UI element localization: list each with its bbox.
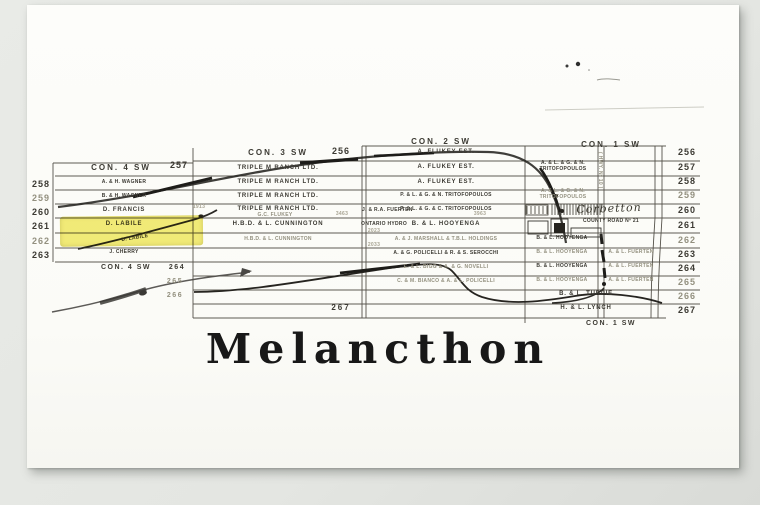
lot-label-con1-257b: TRITOFOPOULOS [526, 167, 600, 172]
lot-label-con2-fuerten: J. & R.A. FUERTEN [362, 208, 406, 213]
row-number-right: 266 [672, 292, 702, 301]
survey-mark: 3963 [468, 212, 492, 217]
pencil-mark [597, 79, 620, 80]
lot-label-con3-261: H.B.D. & L. CUNNINGTON [196, 221, 360, 227]
lot-label-con2-259: P. & L. & G. & N. TRITOFOPOULOS [370, 193, 522, 198]
township-title: Melancthon [198, 325, 558, 373]
header-con4-bottom: CON. 4 SW [90, 264, 162, 271]
station-mark [560, 209, 564, 213]
village-block-filled [554, 223, 565, 233]
header-con2-top: CON. 2 SW [393, 138, 489, 146]
lot-label-con3-257: TRIPLE M RANCH LTD. [196, 165, 360, 171]
village-block [526, 205, 548, 215]
lot-label-con2-hydro: ONTARIO HYDRO [361, 222, 405, 227]
pen-arrow-thick [100, 289, 146, 303]
ink-smudge [588, 69, 590, 71]
village-hatch-small [527, 206, 547, 214]
lot-label-con2-256: A. FLUKEY EST. [370, 149, 522, 155]
lot-label-con3-259: TRIPLE M RANCH LTD. [196, 193, 360, 199]
lot-label-con1-264: B. & L. HOOYENGA [524, 264, 600, 269]
highlight-marker [60, 215, 203, 246]
header-con1-bottom: CON. 1 SW [572, 320, 650, 327]
survey-mark: 2023 [363, 229, 385, 234]
row-number-center: 266 [162, 292, 188, 299]
lot-label-con4-260: D. FRANCIS [57, 207, 191, 213]
lot-label-con2-264: E. & L. BIGG & A. & G. NOVELLI [370, 265, 522, 270]
survey-mark: 1913 [188, 205, 210, 210]
ink-smudge [566, 65, 569, 68]
row-number-center: 267 [326, 304, 356, 312]
survey-mark: 2033 [363, 243, 385, 248]
lot-label-con2-263: A. & G. POLICELLI & R. & S. SEROCCHI [370, 251, 522, 256]
lot-label-con1-262: B. & L. HOOYENGA [524, 236, 600, 241]
row-number-left: 259 [28, 194, 54, 203]
lot-label-con1-263b: A. & L. FUERTEN [604, 250, 658, 255]
lot-label-con2-258: A. FLUKEY EST. [370, 179, 522, 185]
row-number-left: 261 [28, 222, 54, 231]
lot-label-con4-263: J. CHERRY [57, 250, 191, 255]
lot-label-con1-263: B. & L. HOOYENGA [524, 250, 600, 255]
lot-label-con2-257: A. FLUKEY EST. [370, 164, 522, 170]
row-number-right: 263 [672, 250, 702, 259]
lot-label-con1-266: B. & L. TURPIE [538, 291, 634, 297]
header-con3-top: CON. 3 SW [232, 149, 324, 157]
county-road-label: COUNTY ROAD Nº 21 [570, 219, 652, 224]
row-number-right: 259 [672, 191, 702, 200]
lot-label-con3-260b: G.C. FLUKEY [230, 213, 320, 218]
survey-mark: 3463 [330, 212, 354, 217]
row-number-left: 263 [28, 251, 54, 260]
lot-label-con4-259: B. & H. WAGNER [57, 194, 191, 199]
row-number-left: 262 [28, 237, 54, 246]
row-number-right: 260 [672, 206, 702, 215]
row-number-center: 265 [162, 278, 188, 285]
lot-label-con3-262: H.B.D. & L. CUNNINGTON [196, 237, 360, 242]
lot-label-con1-259b: TRITOFOPOULOS [526, 195, 600, 200]
header-con4-top-num: 257 [162, 161, 196, 170]
header-con1-top: CON. 1 SW [563, 141, 659, 149]
header-con3-top-num: 256 [324, 147, 358, 156]
pen-arrow-line [52, 272, 250, 312]
row-number-right: 264 [672, 264, 702, 273]
highway-label: ( HWY. Nº 10 ) [597, 152, 602, 189]
row-number-right: 256 [672, 148, 702, 157]
row-number-left: 260 [28, 208, 54, 217]
row-number-right: 265 [672, 278, 702, 287]
header-con4-top: CON. 4 SW [75, 164, 167, 172]
row-number-right: 262 [672, 236, 702, 245]
row-number-center: 264 [164, 264, 190, 271]
lot-label-con4-258: A. & H. WAGNER [57, 180, 191, 185]
row-number-right: 267 [672, 306, 702, 315]
scanned-map-page: CON. 4 SW 257 CON. 3 SW 256 CON. 2 SW CO… [0, 0, 760, 505]
row-number-right: 257 [672, 163, 702, 172]
handwritten-village-name: Corbetton [567, 202, 651, 216]
railway-seg [300, 159, 358, 163]
row-number-right: 258 [672, 177, 702, 186]
lot-label-con1-267: H. & L. LYNCH [536, 305, 636, 311]
ink-smudge [576, 62, 580, 66]
fold-line [545, 107, 704, 110]
village-block [528, 221, 548, 234]
row-number-left: 258 [28, 180, 54, 189]
lot-label-con3-258: TRIPLE M RANCH LTD. [196, 179, 360, 185]
lot-label-con1-265b: A. & L. FUERTEN [604, 278, 658, 283]
row-number-right: 261 [672, 221, 702, 230]
lot-label-con2-265: C. & M. BIANCO & A. & L. POLICELLI [370, 279, 522, 284]
lot-label-con2-262: A. & J. MARSHALL & T.B.L. HOLDINGS [370, 237, 522, 242]
lot-label-con1-264b: A. & L. FUERTEN [604, 264, 658, 269]
lot-label-con1-265: B. & L. HOOYENGA [524, 278, 600, 283]
